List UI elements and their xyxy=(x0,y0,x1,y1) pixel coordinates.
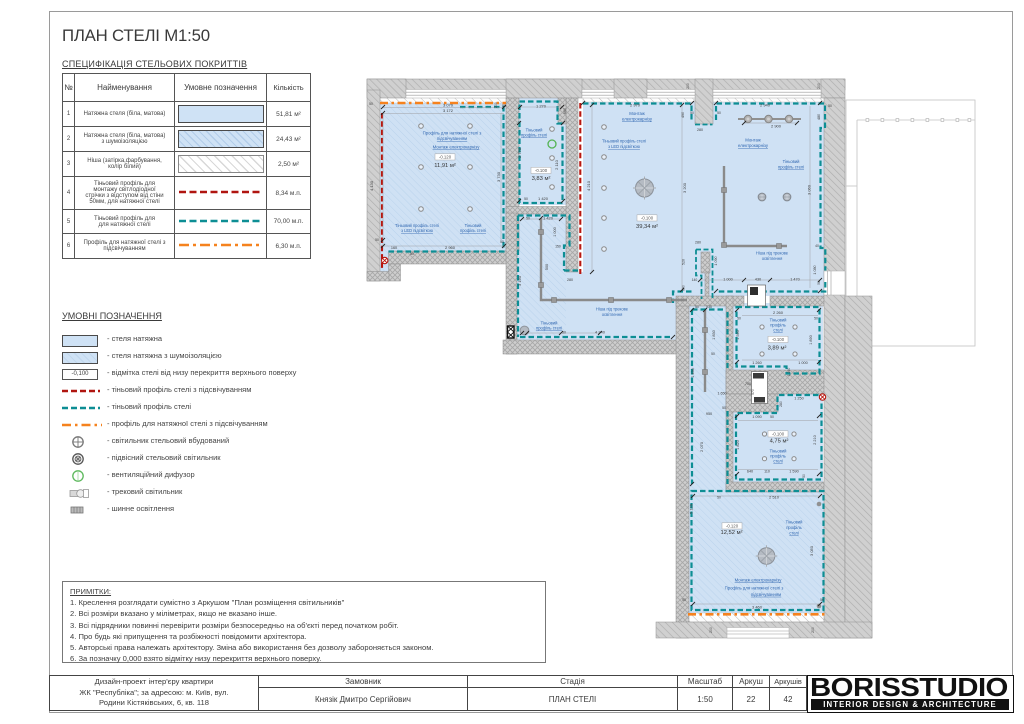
svg-text:Тіньовий профіль стелі: Тіньовий профіль стелі xyxy=(602,139,646,144)
svg-text:50: 50 xyxy=(722,406,726,410)
svg-text:490: 490 xyxy=(681,112,685,118)
svg-text:140: 140 xyxy=(692,278,698,282)
svg-text:1 820: 1 820 xyxy=(736,440,740,450)
svg-text:стелі: стелі xyxy=(773,328,782,333)
svg-text:2 070: 2 070 xyxy=(699,441,704,452)
svg-text:1 090: 1 090 xyxy=(714,256,718,265)
svg-text:500: 500 xyxy=(545,264,549,270)
svg-text:150: 150 xyxy=(555,245,561,249)
svg-text:50: 50 xyxy=(770,415,774,419)
svg-text:280: 280 xyxy=(697,128,703,132)
svg-text:Монтаж: Монтаж xyxy=(745,138,761,143)
svg-text:-0.120: -0.120 xyxy=(439,155,452,160)
svg-text:3 050: 3 050 xyxy=(809,545,814,556)
svg-text:профіль стелі: профіль стелі xyxy=(536,326,562,331)
svg-text:3 060: 3 060 xyxy=(807,184,812,195)
svg-text:520: 520 xyxy=(682,259,686,265)
svg-text:200: 200 xyxy=(686,83,690,89)
svg-text:-0.100: -0.100 xyxy=(641,216,654,221)
svg-text:570: 570 xyxy=(751,389,755,395)
svg-text:-0.120: -0.120 xyxy=(726,524,739,529)
svg-text:200: 200 xyxy=(494,102,498,108)
svg-text:електрокарнізу: електрокарнізу xyxy=(738,143,769,148)
svg-text:1 150: 1 150 xyxy=(787,368,791,377)
svg-text:профіль стелі: профіль стелі xyxy=(521,133,547,138)
svg-text:1 590: 1 590 xyxy=(789,470,799,474)
svg-text:підсвічуванням: підсвічуванням xyxy=(437,136,467,141)
svg-text:1 650: 1 650 xyxy=(718,392,727,396)
svg-text:5 120: 5 120 xyxy=(689,503,694,514)
svg-text:50: 50 xyxy=(814,317,818,321)
svg-text:50: 50 xyxy=(695,305,699,309)
svg-text:1 420: 1 420 xyxy=(538,196,549,201)
svg-text:Монтаж електрокарнізу: Монтаж електрокарнізу xyxy=(433,145,481,150)
svg-text:електрокарнізу: електрокарнізу xyxy=(622,117,653,122)
svg-text:Профіль для натяжної стелі з: Профіль для натяжної стелі з xyxy=(725,586,784,591)
svg-text:50: 50 xyxy=(524,197,528,201)
svg-text:стелі: стелі xyxy=(789,531,798,536)
svg-text:12,52 м²: 12,52 м² xyxy=(720,530,742,536)
svg-text:2 770: 2 770 xyxy=(517,147,522,158)
svg-text:40: 40 xyxy=(815,244,819,248)
svg-text:480: 480 xyxy=(817,114,821,120)
svg-text:3 460: 3 460 xyxy=(752,605,763,610)
svg-text:-0.100: -0.100 xyxy=(772,337,785,342)
svg-text:1 090: 1 090 xyxy=(752,415,762,419)
svg-text:50: 50 xyxy=(375,238,379,242)
svg-text:3 172: 3 172 xyxy=(443,108,454,113)
svg-text:освітлення: освітлення xyxy=(602,312,623,317)
svg-text:3 160: 3 160 xyxy=(517,275,522,286)
svg-text:Тіньовий: Тіньовий xyxy=(783,159,800,164)
svg-text:50: 50 xyxy=(682,598,686,602)
svg-text:200: 200 xyxy=(709,627,713,633)
svg-text:50: 50 xyxy=(717,495,721,499)
svg-text:2 110: 2 110 xyxy=(554,159,559,169)
svg-text:Монтаж: Монтаж xyxy=(629,111,645,116)
svg-text:3,83 м²: 3,83 м² xyxy=(532,176,551,182)
svg-text:Профіль для натяжної стелі з: Профіль для натяжної стелі з xyxy=(423,131,482,136)
svg-text:640: 640 xyxy=(747,470,753,474)
svg-text:1 000: 1 000 xyxy=(798,361,808,365)
svg-text:50: 50 xyxy=(690,111,694,115)
svg-text:50: 50 xyxy=(410,252,414,256)
svg-text:4 210: 4 210 xyxy=(586,180,591,191)
svg-text:3 730: 3 730 xyxy=(496,171,501,182)
svg-text:1 470: 1 470 xyxy=(790,278,800,282)
svg-text:1 890: 1 890 xyxy=(809,335,813,345)
svg-text:50: 50 xyxy=(717,111,721,115)
svg-text:280: 280 xyxy=(567,278,573,282)
svg-text:2 510: 2 510 xyxy=(769,494,780,499)
svg-text:3 070: 3 070 xyxy=(443,103,454,108)
svg-text:Монтаж електрокарнізу: Монтаж електрокарнізу xyxy=(735,578,783,583)
svg-text:1 270: 1 270 xyxy=(536,104,547,109)
svg-text:Ніша під трекове: Ніша під трекове xyxy=(596,307,629,312)
svg-text:430: 430 xyxy=(755,278,761,282)
svg-text:700: 700 xyxy=(745,382,751,386)
svg-text:1 000: 1 000 xyxy=(553,227,557,237)
svg-text:2 960: 2 960 xyxy=(445,245,456,250)
svg-text:200: 200 xyxy=(817,83,821,89)
svg-text:освітлення: освітлення xyxy=(762,256,783,261)
svg-text:4,75 м²: 4,75 м² xyxy=(770,439,789,445)
svg-text:з LED підсвіткою: з LED підсвіткою xyxy=(608,144,640,149)
svg-text:280: 280 xyxy=(779,401,783,407)
svg-text:з LED підсвіткою: з LED підсвіткою xyxy=(401,228,433,233)
svg-text:50: 50 xyxy=(737,317,741,321)
svg-text:11,91 м²: 11,91 м² xyxy=(434,163,456,169)
svg-text:1 850: 1 850 xyxy=(712,330,716,340)
svg-text:Ніша під трекове: Ніша під трекове xyxy=(756,251,789,256)
svg-text:2 940: 2 940 xyxy=(760,102,771,107)
svg-text:підсвічуванням: підсвічуванням xyxy=(751,592,781,597)
svg-text:1 000: 1 000 xyxy=(723,278,733,282)
svg-text:1 260: 1 260 xyxy=(752,361,762,365)
svg-text:50: 50 xyxy=(711,352,715,356)
svg-text:50: 50 xyxy=(820,598,824,602)
svg-text:2 970: 2 970 xyxy=(630,103,641,108)
svg-text:280: 280 xyxy=(695,241,701,245)
svg-text:профіль стелі: профіль стелі xyxy=(778,165,804,170)
svg-text:950: 950 xyxy=(706,412,712,416)
svg-text:профіль: профіль xyxy=(786,525,802,530)
svg-text:660: 660 xyxy=(563,108,567,114)
svg-text:160: 160 xyxy=(391,246,397,250)
svg-text:1 250: 1 250 xyxy=(794,397,804,401)
svg-text:1 420: 1 420 xyxy=(543,215,554,220)
svg-text:200: 200 xyxy=(811,627,815,633)
svg-text:1 080: 1 080 xyxy=(813,265,817,274)
svg-text:1 590: 1 590 xyxy=(736,330,740,340)
svg-text:3,89 м²: 3,89 м² xyxy=(768,346,787,352)
svg-text:39,34 м²: 39,34 м² xyxy=(636,224,658,230)
svg-text:1 450: 1 450 xyxy=(691,368,695,378)
svg-text:50: 50 xyxy=(526,216,530,220)
svg-text:4 130: 4 130 xyxy=(369,180,374,191)
svg-text:50: 50 xyxy=(802,474,806,478)
svg-text:профіль стелі: профіль стелі xyxy=(460,228,486,233)
svg-text:2 210: 2 210 xyxy=(813,435,817,445)
svg-text:50: 50 xyxy=(828,104,832,108)
svg-text:3 200: 3 200 xyxy=(682,182,687,193)
svg-text:стелі: стелі xyxy=(773,459,782,464)
svg-text:110: 110 xyxy=(764,470,770,474)
svg-text:Тіньовий: Тіньовий xyxy=(786,520,803,525)
svg-text:50: 50 xyxy=(369,102,373,106)
svg-text:2 900: 2 900 xyxy=(771,124,782,129)
svg-text:-0.100: -0.100 xyxy=(772,432,785,437)
svg-text:2 260: 2 260 xyxy=(773,310,784,315)
svg-text:50: 50 xyxy=(500,240,504,244)
svg-text:-0.100: -0.100 xyxy=(535,168,548,173)
